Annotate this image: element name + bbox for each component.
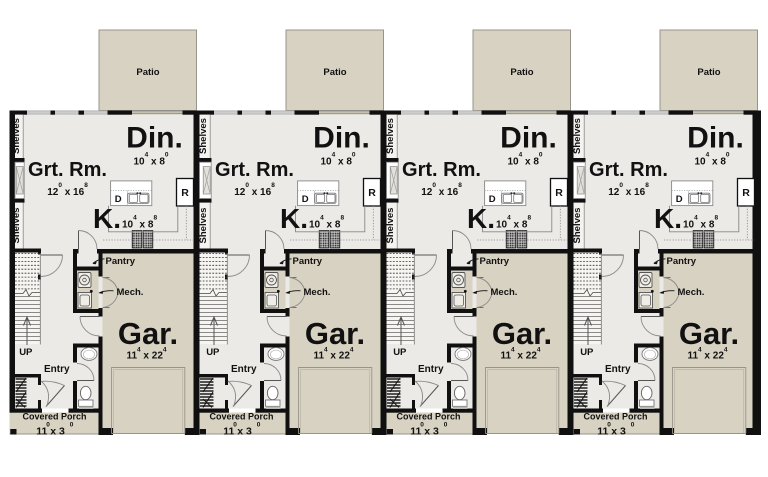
svg-text:K.: K.: [467, 203, 495, 234]
svg-text:Entry: Entry: [231, 364, 257, 375]
svg-text:UP: UP: [580, 347, 594, 358]
svg-text:Din.: Din.: [500, 122, 557, 155]
svg-text:Covered Porch: Covered Porch: [22, 412, 86, 422]
svg-text:R: R: [742, 187, 750, 199]
svg-text:Patio: Patio: [697, 67, 720, 78]
svg-text:11 x 3: 11 x 3: [410, 426, 439, 438]
svg-text:Mech.: Mech.: [304, 287, 331, 298]
svg-text:Entry: Entry: [418, 364, 444, 375]
svg-text:Shelves: Shelves: [385, 118, 396, 154]
svg-text:Grt. Rm.: Grt. Rm.: [402, 159, 481, 181]
svg-text:Patio: Patio: [323, 67, 346, 78]
svg-text:UP: UP: [206, 347, 220, 358]
svg-text:Mech.: Mech.: [678, 287, 705, 298]
svg-text:Shelves: Shelves: [572, 208, 583, 244]
svg-text:11 x 3: 11 x 3: [36, 426, 65, 438]
svg-text:UP: UP: [393, 347, 407, 358]
svg-text:Gar.: Gar.: [679, 316, 739, 351]
svg-text:Pantry: Pantry: [667, 256, 697, 267]
svg-text:Din.: Din.: [313, 122, 370, 155]
svg-text:Shelves: Shelves: [385, 208, 396, 244]
svg-text:R: R: [181, 187, 189, 199]
svg-text:Din.: Din.: [687, 122, 744, 155]
svg-text:Patio: Patio: [510, 67, 533, 78]
svg-text:Shelves: Shelves: [198, 208, 209, 244]
svg-text:Pantry: Pantry: [480, 256, 510, 267]
svg-text:11 x 3: 11 x 3: [597, 426, 626, 438]
svg-text:Mech.: Mech.: [117, 287, 144, 298]
svg-text:Shelves: Shelves: [572, 118, 583, 154]
svg-text:0: 0: [257, 422, 261, 429]
svg-text:Gar.: Gar.: [492, 316, 552, 351]
svg-text:Gar.: Gar.: [118, 316, 178, 351]
svg-text:0: 0: [70, 422, 74, 429]
svg-text:Grt. Rm.: Grt. Rm.: [215, 159, 294, 181]
svg-text:Gar.: Gar.: [305, 316, 365, 351]
svg-text:Covered Porch: Covered Porch: [583, 412, 647, 422]
svg-text:K.: K.: [93, 203, 121, 234]
svg-text:R: R: [368, 187, 376, 199]
svg-text:Entry: Entry: [44, 364, 70, 375]
svg-text:Entry: Entry: [605, 364, 631, 375]
svg-text:Mech.: Mech.: [491, 287, 518, 298]
svg-text:11 x 3: 11 x 3: [223, 426, 252, 438]
svg-text:K.: K.: [280, 203, 308, 234]
svg-text:Pantry: Pantry: [106, 256, 136, 267]
svg-text:0: 0: [631, 422, 635, 429]
svg-text:Shelves: Shelves: [198, 118, 209, 154]
svg-text:Din.: Din.: [126, 122, 183, 155]
svg-text:K.: K.: [654, 203, 682, 234]
svg-text:Grt. Rm.: Grt. Rm.: [28, 159, 107, 181]
svg-text:Covered Porch: Covered Porch: [396, 412, 460, 422]
svg-text:Patio: Patio: [136, 67, 159, 78]
svg-text:Pantry: Pantry: [293, 256, 323, 267]
svg-text:R: R: [555, 187, 563, 199]
svg-text:Covered Porch: Covered Porch: [209, 412, 273, 422]
svg-text:UP: UP: [19, 347, 33, 358]
svg-text:Shelves: Shelves: [11, 118, 22, 154]
svg-text:Grt. Rm.: Grt. Rm.: [589, 159, 668, 181]
svg-text:Shelves: Shelves: [11, 208, 22, 244]
svg-text:0: 0: [444, 422, 448, 429]
